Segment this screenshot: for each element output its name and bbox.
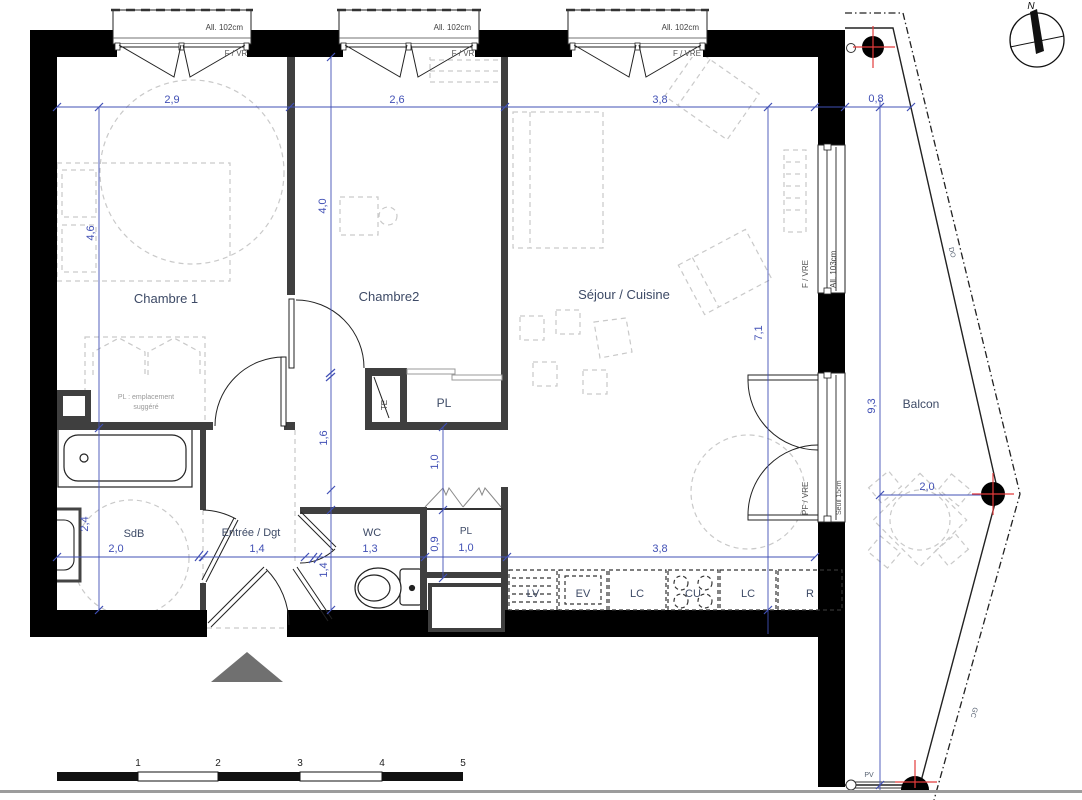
sofa <box>513 112 603 248</box>
chair-chambre2 <box>379 207 397 225</box>
dim-sejour-height: 7,1 <box>753 325 765 340</box>
dim-bottom-entree: 1,4 <box>249 543 264 555</box>
threshold-label: Seuil 15cm <box>836 480 843 515</box>
label-entree: Entrée / Dgt <box>222 527 281 539</box>
allege-label: All. 102cm <box>434 23 472 32</box>
wall <box>818 637 845 787</box>
partition <box>200 583 206 610</box>
floor-plan-drawing: All. 102cm F / VR All. 102cm F / VR <box>0 0 1082 800</box>
door-wc <box>298 512 336 563</box>
toilet <box>355 568 422 608</box>
unit-label-lv: LV <box>527 588 540 600</box>
scale-bar: 1 2 3 4 5 <box>57 758 466 781</box>
window-sejour-east: All. 103cm F / VRE <box>801 144 845 294</box>
dim-mid-wc: 1,4 <box>318 562 330 577</box>
door-chambre2 <box>289 299 364 368</box>
armchair-1 <box>665 50 759 139</box>
dim-top-chambre1: 2,9 <box>164 94 179 106</box>
page-bottom-rule <box>0 790 1082 793</box>
window-type-label: F / VR <box>452 49 475 58</box>
dim-balcon-width: 2,0 <box>919 481 934 493</box>
bed-chambre1 <box>57 163 230 281</box>
unit-label-r: R <box>806 588 814 600</box>
label-sejour: Séjour / Cuisine <box>578 287 670 302</box>
sh-duct <box>57 390 91 422</box>
wardrobe-suggested <box>85 337 205 425</box>
allege-label: All. 102cm <box>662 23 700 32</box>
dining-chair-1 <box>520 316 544 340</box>
label-te: TE <box>380 400 389 410</box>
compass-north-label: N <box>1027 1 1035 12</box>
post-top-circle <box>847 44 856 53</box>
partition <box>427 572 503 578</box>
wall <box>475 30 572 57</box>
windows: All. 102cm F / VR All. 102cm F / VR <box>111 10 845 522</box>
dim-bottom-wc: 1,3 <box>362 543 377 555</box>
window-type-label: F / VR <box>225 49 248 58</box>
dining-chair-4 <box>583 370 607 394</box>
dim-top-chambre2: 2,6 <box>389 94 404 106</box>
door-chambre1 <box>215 357 286 426</box>
unit-label-lc1: LC <box>630 588 644 600</box>
dim-top-sejour: 3,8 <box>652 94 667 106</box>
dim-bottom-sdb: 2,0 <box>108 543 123 555</box>
dim-balcon-height: 9,3 <box>866 398 878 413</box>
partition <box>57 422 213 430</box>
room-labels: Chambre 1 Chambre2 Séjour / Cuisine Balc… <box>118 247 978 779</box>
door-window-balcon: PF / VRE Seuil 15cm <box>748 372 845 522</box>
note-pl-suggested-1: PL : emplacement <box>118 394 174 401</box>
kitchen-units: LV EV LC CU LC R <box>509 570 842 610</box>
rail-end-circle <box>846 780 856 790</box>
label-wc: WC <box>363 527 381 539</box>
compass: N <box>1010 1 1064 67</box>
unit-label-ev: EV <box>576 588 591 600</box>
partition <box>200 430 206 510</box>
dim-mid-hall: 1,6 <box>318 430 330 445</box>
wall <box>818 522 845 637</box>
dining-chair-2 <box>556 310 580 334</box>
te-panel <box>374 377 389 418</box>
allege-label: All. 102cm <box>206 23 244 32</box>
dim-bottom-pl: 1,0 <box>458 542 473 554</box>
door-entrance <box>208 567 289 627</box>
unit-label-cu: CU <box>685 588 701 600</box>
wall <box>247 30 343 57</box>
label-pl-chambre2: PL <box>437 396 452 410</box>
window-type-label: PF / VRE <box>801 482 810 515</box>
technical-box <box>430 585 503 630</box>
dim-pl-top: 1,0 <box>429 454 441 469</box>
scale-label-1: 1 <box>135 758 141 769</box>
scale-label-4: 4 <box>379 758 385 769</box>
partition <box>365 422 507 430</box>
dim-mid-chambre2: 4,0 <box>317 198 329 213</box>
allege-label: All. 103cm <box>829 250 838 288</box>
scale-label-3: 3 <box>297 758 303 769</box>
unit-label-lc2: LC <box>741 588 755 600</box>
partition <box>287 57 295 295</box>
door-sdb <box>202 510 238 582</box>
label-balcon: Balcon <box>903 397 940 411</box>
partition <box>501 57 508 430</box>
pl-entree-hangers <box>425 488 501 507</box>
hanger-symbol-2 <box>148 338 200 375</box>
label-pl-entree: PL <box>460 526 473 537</box>
window-chambre1: All. 102cm F / VR <box>111 10 253 77</box>
window-type-label: F / VRE <box>801 260 810 288</box>
pl-chambre2-sliding-doors <box>407 369 502 380</box>
scale-label-2: 2 <box>215 758 221 769</box>
bathtub <box>58 429 192 487</box>
armchair-2 <box>678 229 771 314</box>
wall <box>30 610 207 637</box>
turning-circle-chambre1 <box>100 80 284 264</box>
note-pl-suggested-2: suggéré <box>133 404 158 411</box>
label-sdb: SdB <box>124 528 145 540</box>
label-do: DO <box>947 247 956 259</box>
partition <box>365 368 372 430</box>
pillow-1 <box>62 170 96 217</box>
window-type-label: F / VRE <box>673 49 701 58</box>
label-pv: PV <box>864 772 874 779</box>
wall <box>818 293 845 373</box>
hanger-symbol-1 <box>93 338 145 375</box>
partition <box>300 507 427 514</box>
wall <box>818 30 845 145</box>
wall <box>287 610 845 637</box>
dim-bottom-cuisine: 3,8 <box>652 543 667 555</box>
dining-armchair <box>594 318 632 358</box>
radiator-sejour <box>784 150 806 232</box>
label-chambre2: Chambre2 <box>359 289 420 304</box>
partition <box>421 509 427 578</box>
window-chambre2: All. 102cm F / VR <box>337 10 481 77</box>
window-sejour: All. 102cm F / VRE <box>566 10 709 77</box>
label-gc: GC <box>969 706 978 718</box>
dim-top-balcon: 0,8 <box>868 93 883 105</box>
desk-chambre2 <box>340 197 378 235</box>
label-chambre1: Chambre 1 <box>134 291 198 306</box>
floor-plan-page: All. 102cm F / VR All. 102cm F / VR <box>0 0 1082 800</box>
dim-left-chambre1: 4,6 <box>85 225 97 240</box>
partition <box>400 368 407 430</box>
entry-arrow <box>211 652 283 682</box>
dim-pl-depth: 0,9 <box>429 536 441 551</box>
dim-left-sdb: 2,4 <box>79 516 91 531</box>
dining-chair-3 <box>533 362 557 386</box>
scale-label-5: 5 <box>460 758 466 769</box>
wall <box>30 30 57 637</box>
